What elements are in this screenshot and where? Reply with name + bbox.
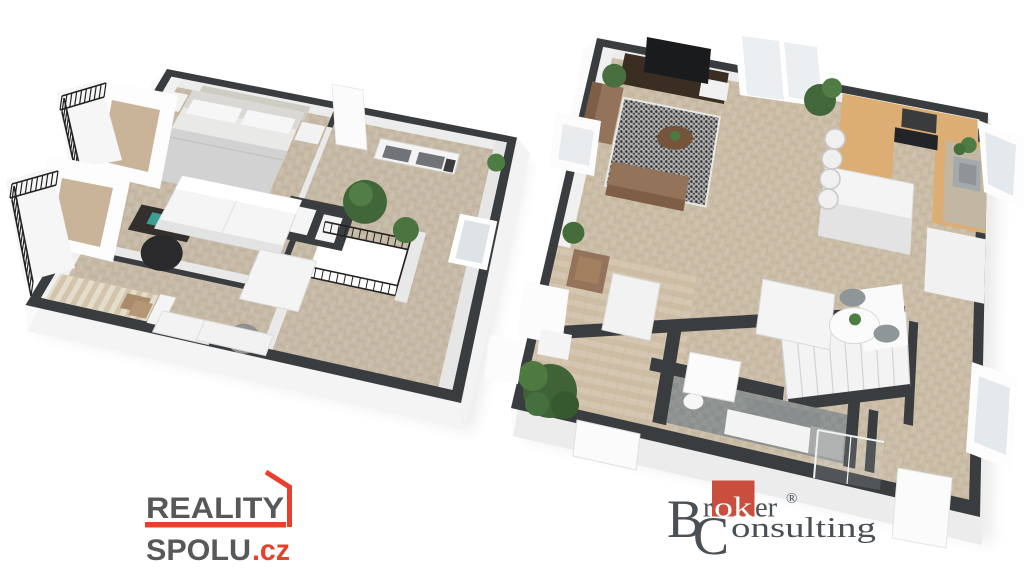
svg-text:.cz: .cz [252,534,290,567]
svg-text:onsulting: onsulting [731,513,876,544]
svg-text:SPOLU: SPOLU [146,534,251,567]
svg-text:®: ® [786,491,797,507]
svg-text:C: C [693,506,729,566]
svg-text:REALITY: REALITY [146,492,284,525]
